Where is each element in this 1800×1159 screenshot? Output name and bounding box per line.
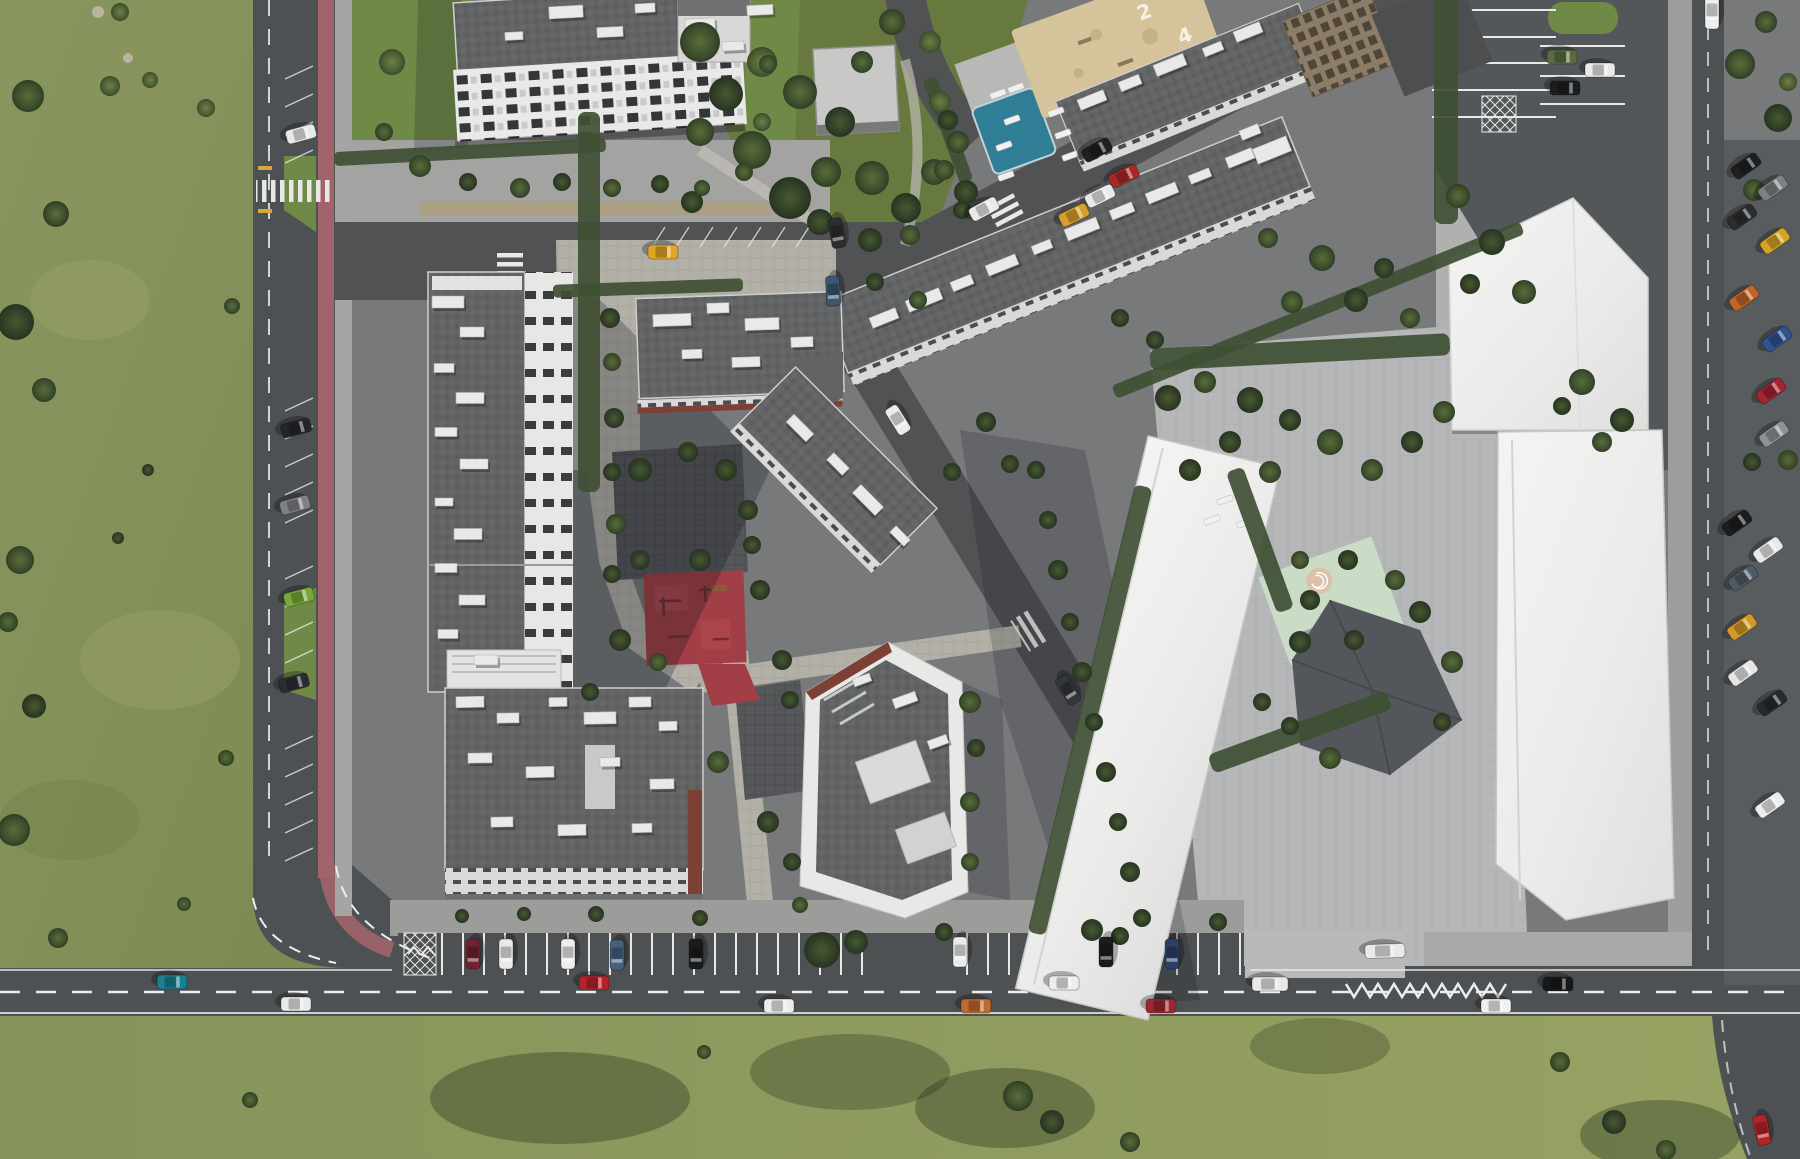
west-sidewalk xyxy=(335,0,352,916)
tree xyxy=(1309,245,1335,271)
tree xyxy=(1194,371,1216,393)
tree xyxy=(678,442,698,462)
roof-box xyxy=(468,753,494,766)
tree xyxy=(1096,762,1116,782)
keep-clear-hatch-ne xyxy=(1482,96,1516,132)
tree xyxy=(1409,601,1431,623)
tree xyxy=(1569,369,1595,395)
roof-box xyxy=(600,757,622,769)
tree xyxy=(32,378,56,402)
tree xyxy=(1602,1110,1626,1134)
tree xyxy=(1779,73,1797,91)
roof-box xyxy=(584,712,618,728)
roof-box xyxy=(629,697,653,710)
bike-lane xyxy=(318,0,334,878)
tree xyxy=(879,9,905,35)
tree xyxy=(858,228,882,252)
tree xyxy=(909,291,927,309)
tree xyxy=(769,177,811,219)
tree xyxy=(825,107,855,137)
tree xyxy=(1120,1132,1140,1152)
roof-box xyxy=(682,349,704,362)
tree xyxy=(1344,288,1368,312)
roof-box xyxy=(526,766,556,781)
tree xyxy=(1209,913,1227,931)
roof-box xyxy=(438,630,460,642)
tree xyxy=(1291,551,1309,569)
tree xyxy=(1289,631,1311,653)
tree xyxy=(1319,747,1341,769)
tree xyxy=(1610,408,1634,432)
tree xyxy=(961,853,979,871)
tree xyxy=(743,536,761,554)
tree xyxy=(1441,651,1463,673)
tree xyxy=(651,175,669,193)
tree xyxy=(177,897,191,911)
roof-box xyxy=(497,713,521,726)
tree xyxy=(218,750,234,766)
tree xyxy=(697,1045,711,1059)
roof-box xyxy=(456,393,486,407)
tree xyxy=(1179,459,1201,481)
roof-box xyxy=(745,317,782,333)
tree xyxy=(1553,397,1571,415)
tree xyxy=(689,549,711,571)
roof-box xyxy=(432,296,466,311)
tree xyxy=(510,178,530,198)
tree xyxy=(43,201,69,227)
tree xyxy=(603,179,621,197)
rock xyxy=(92,6,104,18)
tree xyxy=(100,76,120,96)
tree xyxy=(959,691,981,713)
south-sidewalk-east xyxy=(1424,932,1692,966)
tree xyxy=(976,412,996,432)
tree xyxy=(1237,387,1263,413)
roof-box xyxy=(632,823,654,835)
roof-box xyxy=(454,529,484,543)
tree xyxy=(1001,455,1019,473)
tree xyxy=(12,80,44,112)
roof-box xyxy=(558,824,588,839)
tree xyxy=(111,3,129,21)
tree xyxy=(1317,429,1343,455)
tree xyxy=(735,163,753,181)
tree xyxy=(781,691,799,709)
tree xyxy=(1027,461,1045,479)
tree xyxy=(112,532,124,544)
tree xyxy=(375,123,393,141)
tree xyxy=(1400,308,1420,328)
crosswalk-west-road xyxy=(256,180,332,202)
roof-box xyxy=(549,697,569,709)
tree xyxy=(1259,461,1281,483)
tree xyxy=(759,55,777,73)
car xyxy=(1246,972,1288,991)
tree xyxy=(1300,590,1320,610)
tree xyxy=(600,308,620,328)
tree xyxy=(757,811,779,833)
tree xyxy=(1592,432,1612,452)
tree xyxy=(22,694,46,718)
building-hexagon-south xyxy=(800,642,968,918)
roof-box xyxy=(474,655,500,668)
tree xyxy=(935,923,953,941)
tree xyxy=(844,930,868,954)
tree xyxy=(715,459,737,481)
tree xyxy=(1446,184,1470,208)
tree xyxy=(142,72,158,88)
hedge xyxy=(578,112,600,492)
tree xyxy=(1338,550,1358,570)
tree xyxy=(738,500,758,520)
tree xyxy=(1374,258,1394,278)
roof-box xyxy=(659,721,679,733)
tree xyxy=(1133,909,1151,927)
tree xyxy=(772,650,792,670)
tree xyxy=(1040,1110,1064,1134)
tree xyxy=(606,514,626,534)
tree xyxy=(1401,431,1423,453)
tree xyxy=(455,909,469,923)
tree xyxy=(1048,560,1068,580)
tree-shadow xyxy=(1250,1018,1390,1074)
tree xyxy=(517,907,531,921)
tree xyxy=(938,110,958,130)
tree xyxy=(919,31,941,53)
tree xyxy=(1039,511,1057,529)
tree xyxy=(1219,431,1241,453)
roof-box xyxy=(435,498,455,509)
tree xyxy=(954,180,978,204)
tree xyxy=(792,897,808,913)
tree xyxy=(142,464,154,476)
tree xyxy=(6,546,34,574)
tree xyxy=(1512,280,1536,304)
roof-box xyxy=(491,817,515,830)
tree xyxy=(1385,570,1405,590)
tree xyxy=(603,463,621,481)
tree xyxy=(1085,713,1103,731)
tree xyxy=(943,463,961,481)
tree xyxy=(1460,274,1480,294)
tree xyxy=(1433,401,1455,423)
tree xyxy=(628,458,652,482)
tree xyxy=(947,131,969,153)
aerial-masterplan-render: { "meta": { "title": "Aerial top-down re… xyxy=(0,0,1800,1159)
tree xyxy=(750,580,770,600)
tree xyxy=(783,853,801,871)
tree xyxy=(783,75,817,109)
tree xyxy=(604,408,624,428)
tree xyxy=(960,792,980,812)
tree xyxy=(1550,1052,1570,1072)
tree xyxy=(379,49,405,75)
tree xyxy=(630,550,650,570)
building-white-slab-east xyxy=(1496,430,1674,920)
yield-mark xyxy=(258,166,272,170)
roof-box xyxy=(435,564,459,576)
tree xyxy=(733,131,771,169)
rock xyxy=(123,53,133,63)
roof-box xyxy=(459,595,487,608)
tree xyxy=(1109,813,1127,831)
tree xyxy=(866,273,884,291)
tree xyxy=(242,1092,258,1108)
tree xyxy=(811,157,841,187)
tree xyxy=(680,22,720,62)
parking-island-green xyxy=(1548,2,1618,34)
roof-box xyxy=(460,327,486,340)
roof-box xyxy=(505,31,526,43)
roof-box xyxy=(732,356,762,370)
tree xyxy=(900,225,920,245)
yield-mark xyxy=(258,209,272,213)
tree xyxy=(588,906,604,922)
roof-box xyxy=(791,337,815,351)
roof-box xyxy=(456,696,486,711)
tree xyxy=(694,180,710,196)
tree xyxy=(409,155,431,177)
tree xyxy=(553,173,571,191)
roof-box xyxy=(653,313,693,329)
tree xyxy=(686,118,714,146)
tree xyxy=(804,932,840,968)
roof-box xyxy=(650,779,676,792)
tree xyxy=(1743,453,1761,471)
tree xyxy=(1725,49,1755,79)
tree xyxy=(1778,450,1798,470)
tree xyxy=(1479,229,1505,255)
tree xyxy=(1061,613,1079,631)
tree xyxy=(1003,1081,1033,1111)
tree xyxy=(709,77,743,111)
tree xyxy=(1155,385,1181,411)
tree xyxy=(1258,228,1278,248)
tree xyxy=(197,99,215,117)
tree xyxy=(649,653,667,671)
tree xyxy=(1281,291,1303,313)
tree xyxy=(707,751,729,773)
roof-box xyxy=(434,364,456,376)
tree xyxy=(1120,862,1140,882)
roof-box xyxy=(707,303,731,317)
tree xyxy=(891,193,921,223)
tree xyxy=(1361,459,1383,481)
tree xyxy=(603,353,621,371)
tree xyxy=(1111,309,1129,327)
tree xyxy=(1755,11,1777,33)
roof-box xyxy=(460,459,490,472)
field-patch xyxy=(80,610,240,710)
tree-shadow xyxy=(915,1068,1095,1148)
field-patch xyxy=(30,260,150,340)
building-estate-south xyxy=(445,650,703,899)
tree xyxy=(1764,104,1792,132)
tree xyxy=(1146,331,1164,349)
tree xyxy=(459,173,477,191)
roof-box xyxy=(747,4,776,18)
tree xyxy=(1433,713,1451,731)
roof-box xyxy=(722,41,747,54)
tree xyxy=(603,565,621,583)
tree xyxy=(1253,693,1271,711)
roof-box xyxy=(597,26,626,40)
building-estate-west xyxy=(428,272,573,692)
tree xyxy=(934,160,954,180)
tree xyxy=(855,161,889,195)
tree xyxy=(1281,717,1299,735)
tree xyxy=(1344,630,1364,650)
tree xyxy=(851,51,873,73)
tree xyxy=(692,910,708,926)
tree xyxy=(967,739,985,757)
roof-box xyxy=(549,5,586,22)
tree-shadow xyxy=(430,1052,690,1144)
tree xyxy=(1279,409,1301,431)
tree xyxy=(929,91,951,113)
tree xyxy=(753,113,771,131)
tree xyxy=(581,683,599,701)
tree xyxy=(48,928,68,948)
roof-box xyxy=(635,3,658,16)
tree xyxy=(224,298,240,314)
tree xyxy=(609,629,631,651)
roof-box xyxy=(435,428,459,440)
